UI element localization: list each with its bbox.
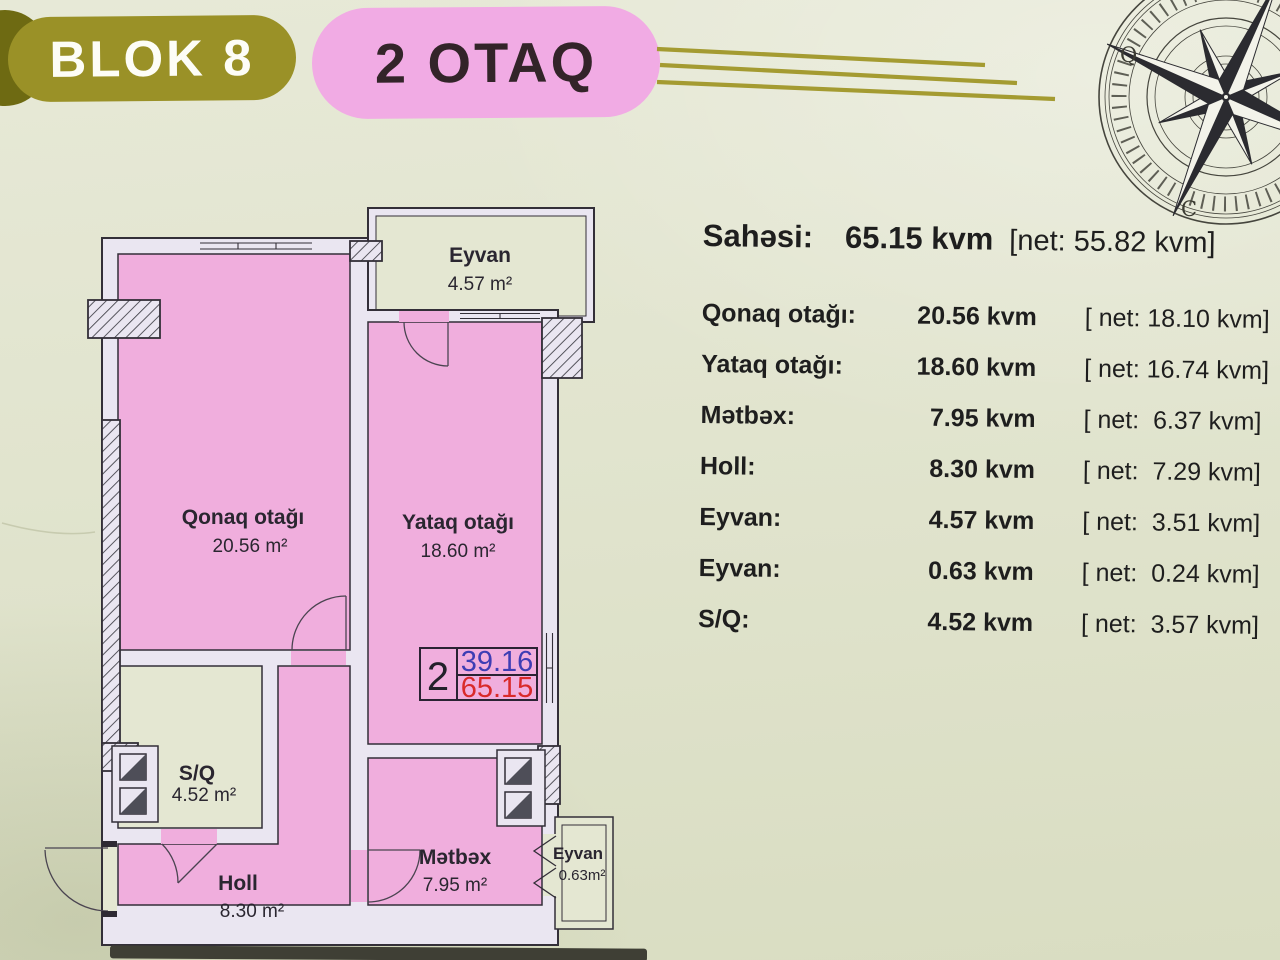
row-value: 18.60 kvm <box>906 352 1036 383</box>
row-net: [ net: 3.51 kvm] <box>1034 507 1274 539</box>
summary-row: Mətbəx: 7.95 kvm [ net: 6.37 kvm] <box>700 390 1276 448</box>
doorway-balcony <box>399 311 449 322</box>
row-value: 4.57 kvm <box>904 505 1034 536</box>
summary-row: S/Q: 4.52 kvm [ net: 3.57 kvm] <box>698 594 1274 652</box>
doorway-living <box>291 651 346 665</box>
row-net: [ net: 16.74 kvm] <box>1036 354 1276 386</box>
unit-info-box: 2 39.16 65.15 <box>420 646 537 704</box>
label-hall: Holl <box>218 872 258 895</box>
row-label: Holl: <box>700 452 905 484</box>
room-count-label: 2 OTAQ <box>375 29 598 96</box>
summary-row: Holl: 8.30 kvm [ net: 7.29 kvm] <box>700 441 1276 499</box>
row-net: [ net: 6.37 kvm] <box>1035 405 1275 437</box>
area-bathroom: 4.52 m² <box>172 785 236 806</box>
paper-mark <box>2 523 95 534</box>
row-value: 7.95 kvm <box>905 403 1035 434</box>
row-value: 20.56 kvm <box>907 301 1037 332</box>
label-kitchen: Mətbəx <box>419 846 492 869</box>
compass-rose-icon: Q C <box>1086 0 1280 232</box>
doorway-entrance <box>103 847 117 911</box>
row-label: Yataq otağı: <box>701 350 906 382</box>
area-living: 20.56 m² <box>213 536 288 557</box>
compass-south-label: C <box>1181 197 1197 221</box>
photo-edge-shadow <box>110 945 647 960</box>
total-area-value: 65.15 kvm <box>845 220 994 258</box>
area-balcony-top: 4.57 m² <box>448 274 512 295</box>
doorway-bathroom <box>161 829 217 844</box>
row-label: Mətbəx: <box>700 401 905 433</box>
gold-divider-lines <box>648 36 1068 116</box>
summary-row: Qonaq otağı: 20.56 kvm [ net: 18.10 kvm] <box>702 288 1278 346</box>
row-value: 4.52 kvm <box>903 607 1033 638</box>
block-label: BLOK 8 <box>49 28 255 89</box>
label-bedroom: Yataq otağı <box>402 511 514 534</box>
row-net: [ net: 18.10 kvm] <box>1037 303 1277 335</box>
area-balcony-small: 0.63m² <box>559 867 606 884</box>
area-bedroom: 18.60 m² <box>421 541 496 562</box>
label-bathroom: S/Q <box>179 762 215 785</box>
compass-west-label: Q <box>1120 43 1137 67</box>
block-badge: BLOK 8 <box>8 15 297 103</box>
area-summary: Sahəsi: 65.15 kvm [net: 55.82 kvm] Qonaq… <box>698 218 1278 652</box>
row-label: Qonaq otağı: <box>702 299 907 331</box>
row-net: [ net: 0.24 kvm] <box>1034 558 1274 590</box>
unit-room-count: 2 <box>427 655 449 699</box>
unit-gross-area: 65.15 <box>461 672 534 704</box>
label-balcony-small: Eyvan <box>553 844 603 863</box>
summary-row: Eyvan: 4.57 kvm [ net: 3.51 kvm] <box>699 492 1275 550</box>
label-balcony-top: Eyvan <box>449 244 511 267</box>
row-value: 8.30 kvm <box>905 454 1035 485</box>
row-label: S/Q: <box>698 605 903 637</box>
summary-title-row: Sahəsi: 65.15 kvm [net: 55.82 kvm] <box>702 218 1278 277</box>
label-living: Qonaq otağı <box>182 506 305 529</box>
row-label: Eyvan: <box>699 554 904 586</box>
summary-row: Eyvan: 0.63 kvm [ net: 0.24 kvm] <box>698 543 1274 601</box>
doorway-kitchen <box>351 850 367 902</box>
area-kitchen: 7.95 m² <box>423 875 487 896</box>
total-area-label: Sahəsi: <box>703 218 814 255</box>
floor-plan-poster: BLOK 8 2 OTAQ <box>0 0 1280 960</box>
row-label: Eyvan: <box>699 503 904 535</box>
room-count-badge: 2 OTAQ <box>312 6 661 119</box>
row-net: [ net: 3.57 kvm] <box>1033 609 1273 641</box>
row-net: [ net: 7.29 kvm] <box>1035 456 1275 488</box>
summary-row: Yataq otağı: 18.60 kvm [ net: 16.74 kvm] <box>701 339 1277 397</box>
row-value: 0.63 kvm <box>904 556 1034 587</box>
floor-plan-drawing: 2 39.16 65.15 Eyvan 4.57 m² Qonaq otağı … <box>50 198 630 960</box>
total-area-net: [net: 55.82 kvm] <box>1009 225 1216 261</box>
summary-rows: Qonaq otağı: 20.56 kvm [ net: 18.10 kvm]… <box>698 288 1277 652</box>
area-hall: 8.30 m² <box>220 901 284 922</box>
